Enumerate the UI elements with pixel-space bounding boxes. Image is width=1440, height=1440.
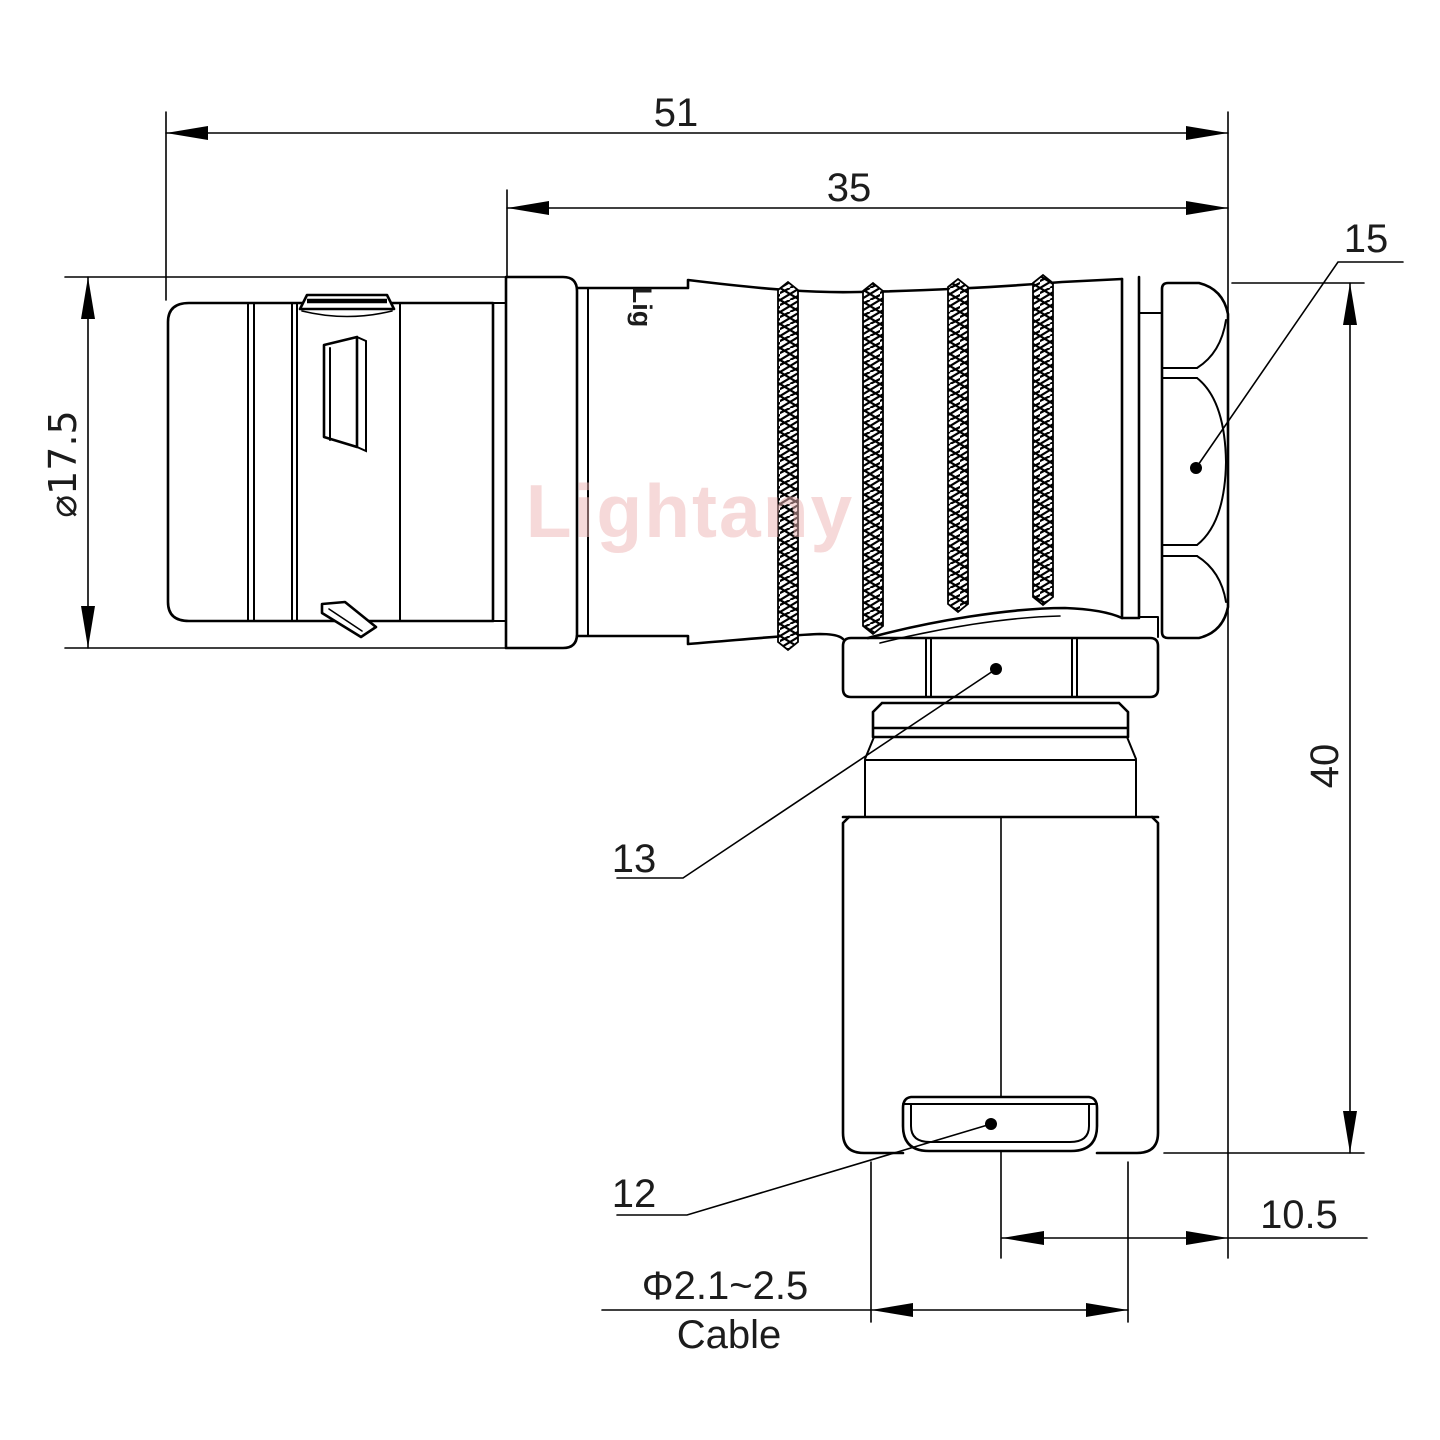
technical-drawing: 51 35 15 ⌀17.5 40 13 12 10.5 Φ2.1~2.5 Ca… <box>0 0 1440 1440</box>
collar <box>873 703 1128 737</box>
cap-flange-links <box>493 303 506 621</box>
leader-lines <box>617 262 1403 1215</box>
arrowheads <box>81 126 1357 1317</box>
cable-word-label: Cable <box>677 1313 782 1357</box>
knurl-band-2 <box>863 283 883 634</box>
hex-nut-facet-lines <box>1162 368 1197 556</box>
ref-12-label: 12 <box>612 1172 657 1216</box>
knurl-bands <box>778 275 1053 650</box>
leader-13-dot <box>990 663 1002 675</box>
leader-13 <box>617 669 996 878</box>
bottom-latch <box>322 602 376 637</box>
ext-40 <box>1164 283 1364 1153</box>
key-window <box>324 337 357 447</box>
leader-15-dot <box>1190 462 1202 474</box>
grip-bottom-edge <box>577 634 843 644</box>
front-flange <box>506 277 577 648</box>
barrel-upper <box>865 737 1136 816</box>
dim-40-label: 40 <box>1303 744 1347 789</box>
grip-neck <box>1139 313 1162 637</box>
ref-13-label: 13 <box>612 837 657 881</box>
ext-diameter <box>65 277 508 648</box>
body-engraving: Lig <box>627 287 657 328</box>
dimension-lines <box>65 112 1403 1322</box>
ext-cable <box>871 1162 1128 1322</box>
leader-12-dot <box>985 1118 997 1130</box>
hex-nut <box>1162 283 1228 638</box>
grip-elbow-curve <box>868 608 1122 638</box>
dim-diameter-label: ⌀17.5 <box>41 410 85 518</box>
top-latch-arc <box>302 311 392 317</box>
connector-outline <box>168 275 1228 1258</box>
knurl-band-3 <box>948 279 968 612</box>
dimension-labels: 51 35 15 ⌀17.5 40 13 12 10.5 Φ2.1~2.5 Ca… <box>41 91 1388 1357</box>
grip-end-cap <box>1122 277 1139 618</box>
knurl-band-1 <box>778 282 798 650</box>
drawing-canvas: 51 35 15 ⌀17.5 40 13 12 10.5 Φ2.1~2.5 Ca… <box>0 0 1440 1440</box>
dim-51-label: 51 <box>654 91 699 135</box>
watermark: Lightany <box>526 469 855 553</box>
dim-10_5-label: 10.5 <box>1260 1193 1338 1237</box>
dim-35-label: 35 <box>827 166 872 210</box>
dim-cable-range-label: Φ2.1~2.5 <box>642 1264 808 1308</box>
knurl-band-4 <box>1033 275 1053 605</box>
dim-15-label: 15 <box>1344 217 1389 261</box>
